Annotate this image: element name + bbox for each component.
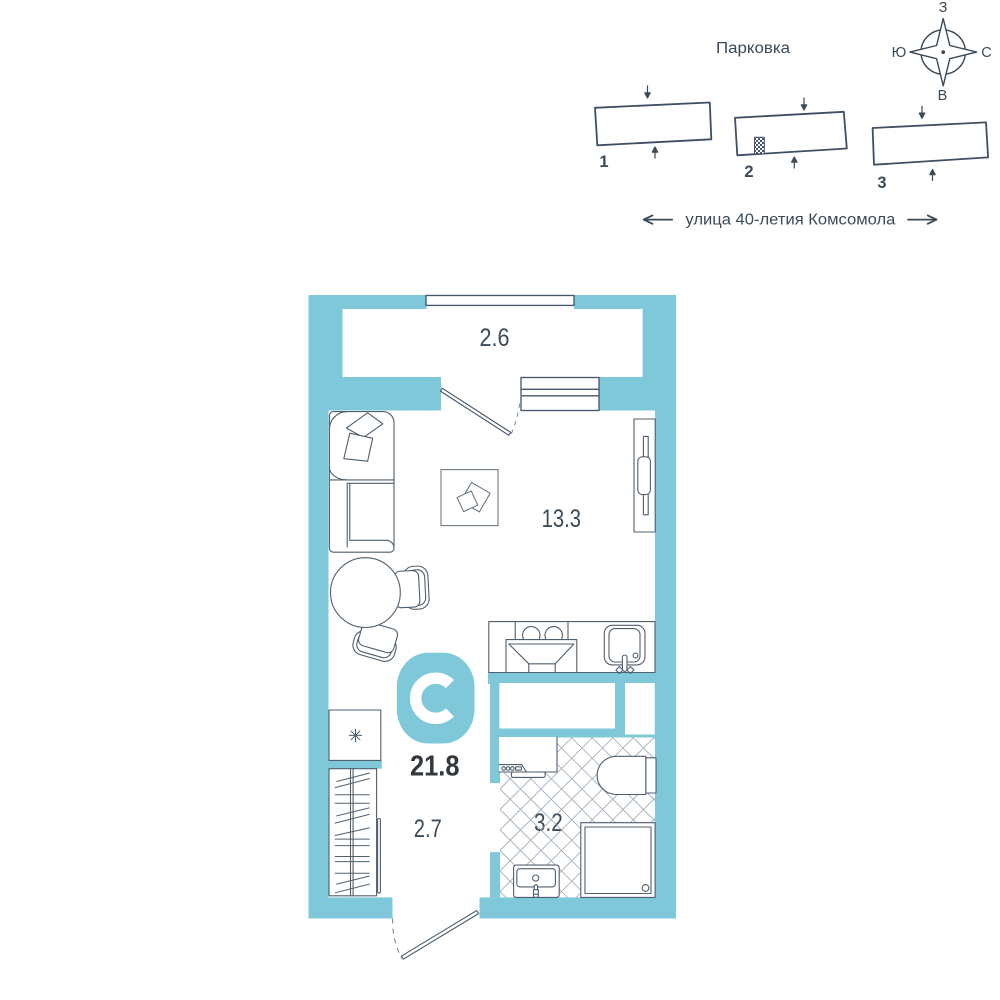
svg-text:21.8: 21.8 [410,751,460,783]
svg-text:2: 2 [744,163,753,181]
svg-text:улица 40-летия Комсомола: улица 40-летия Комсомола [685,212,895,229]
svg-text:Ю: Ю [892,45,907,61]
svg-text:2.6: 2.6 [480,324,510,352]
svg-text:В: В [938,88,948,104]
svg-text:З: З [939,0,948,16]
svg-text:3: 3 [877,174,886,192]
svg-text:1: 1 [599,153,608,171]
svg-text:13.3: 13.3 [542,505,581,533]
svg-text:2.7: 2.7 [414,815,442,843]
svg-text:С: С [981,45,991,61]
svg-text:Парковка: Парковка [716,40,790,57]
